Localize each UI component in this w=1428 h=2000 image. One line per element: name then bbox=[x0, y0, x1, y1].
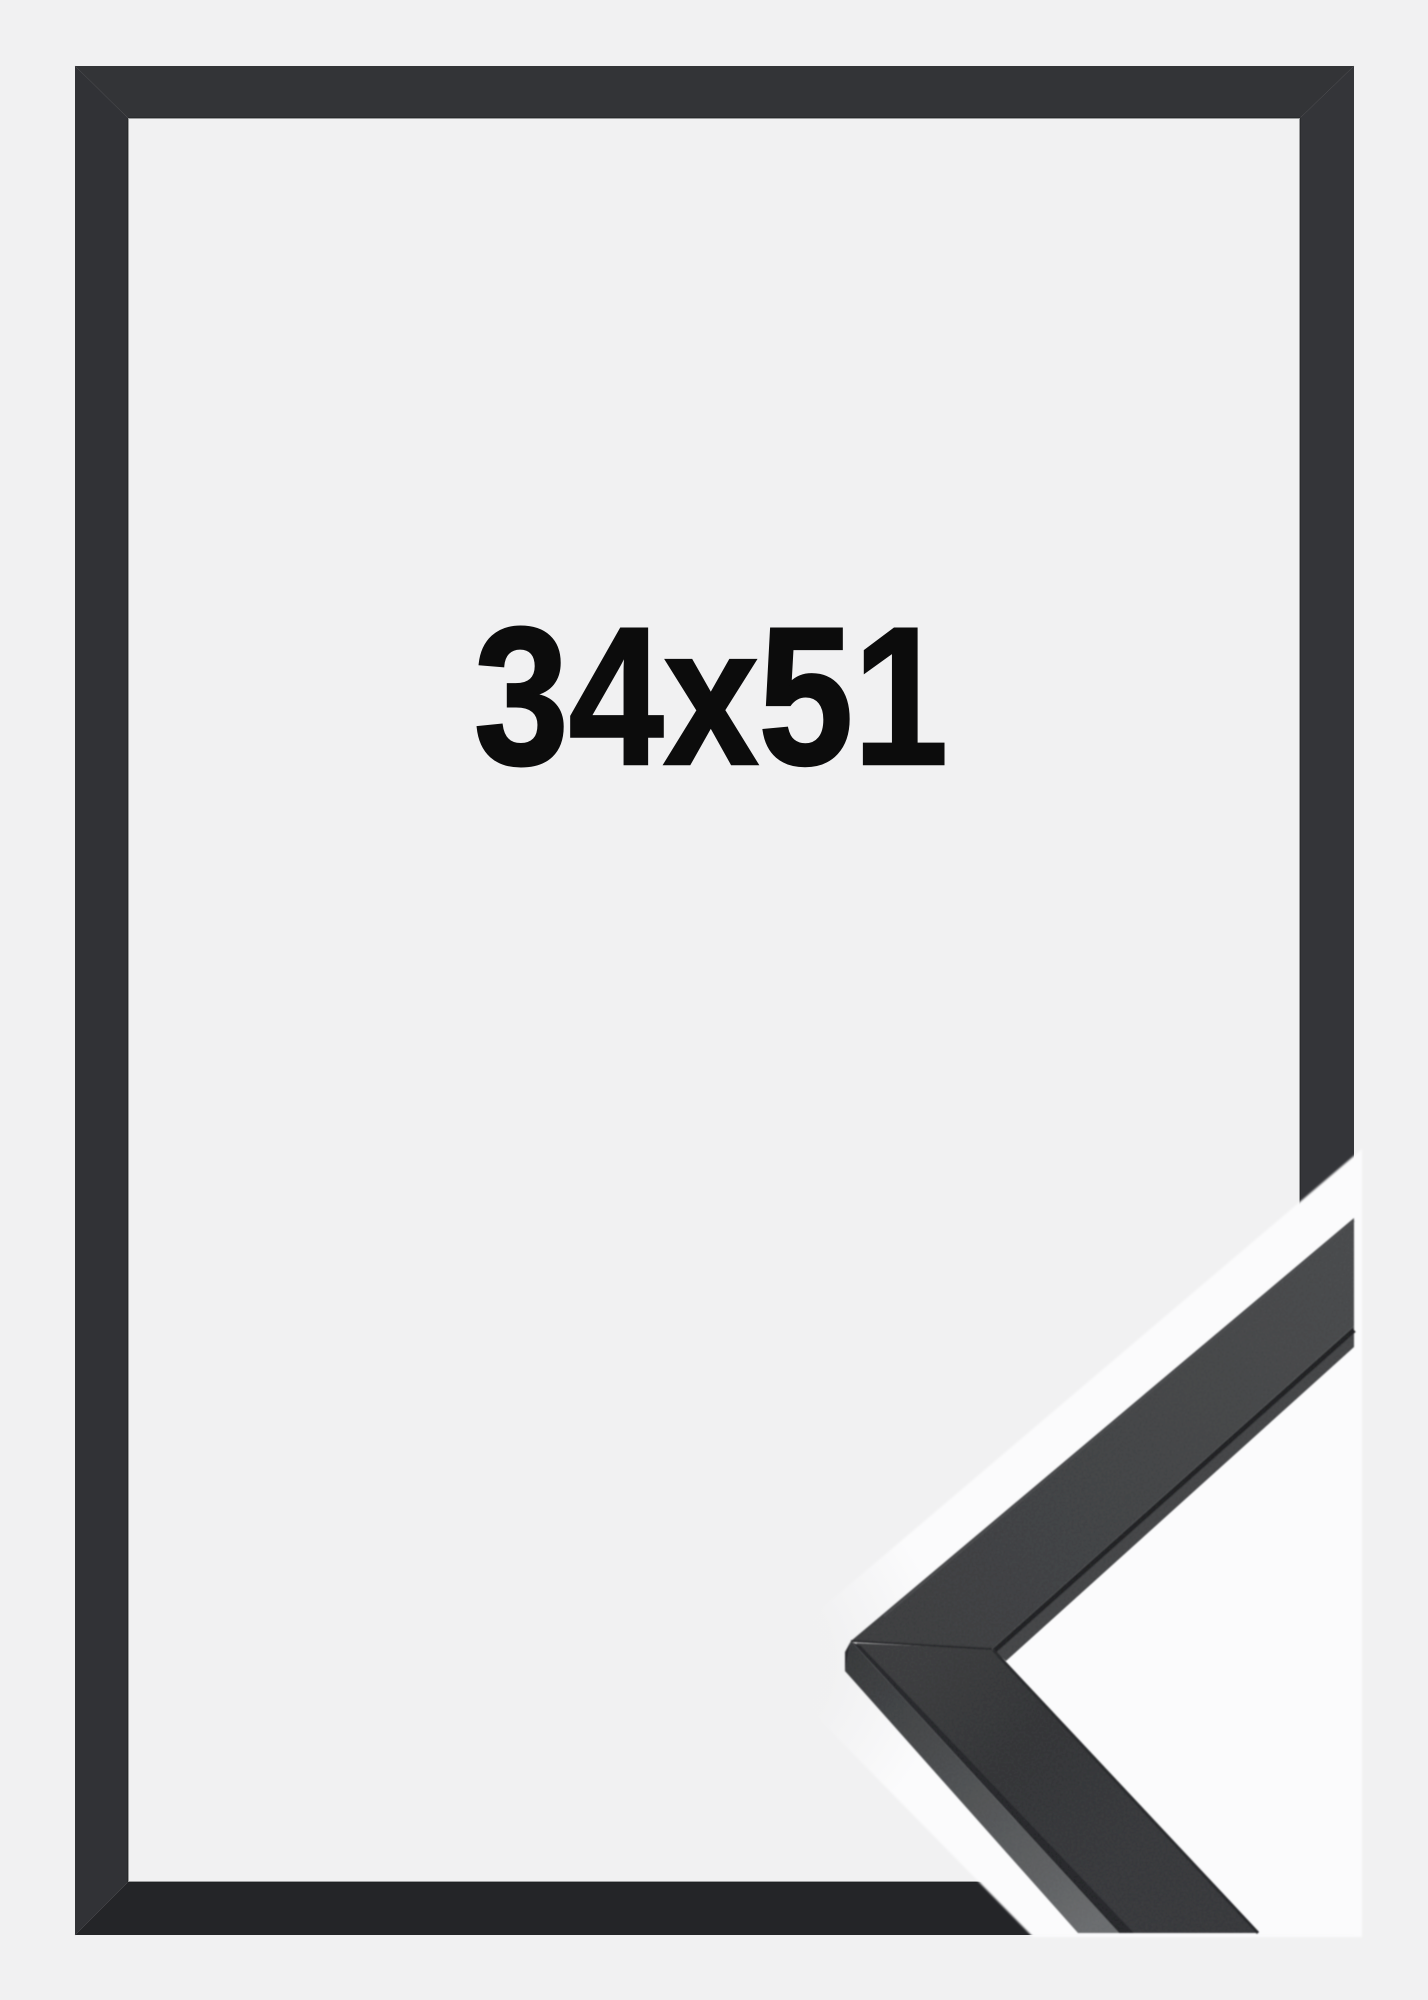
svg-text:34x51: 34x51 bbox=[474, 586, 948, 806]
